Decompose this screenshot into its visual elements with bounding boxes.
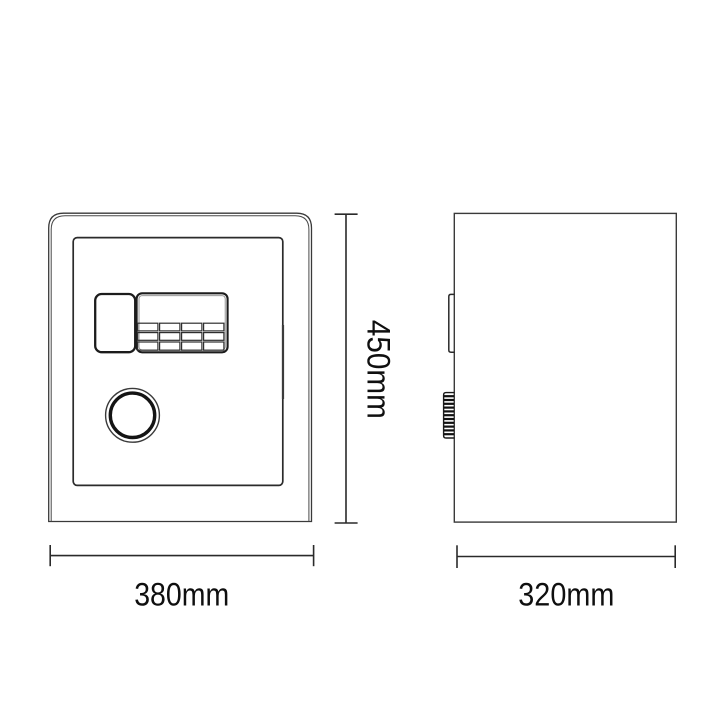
svg-text:380mm: 380mm [134,577,229,613]
svg-text:320mm: 320mm [518,577,614,613]
svg-text:450mm: 450mm [361,320,397,419]
